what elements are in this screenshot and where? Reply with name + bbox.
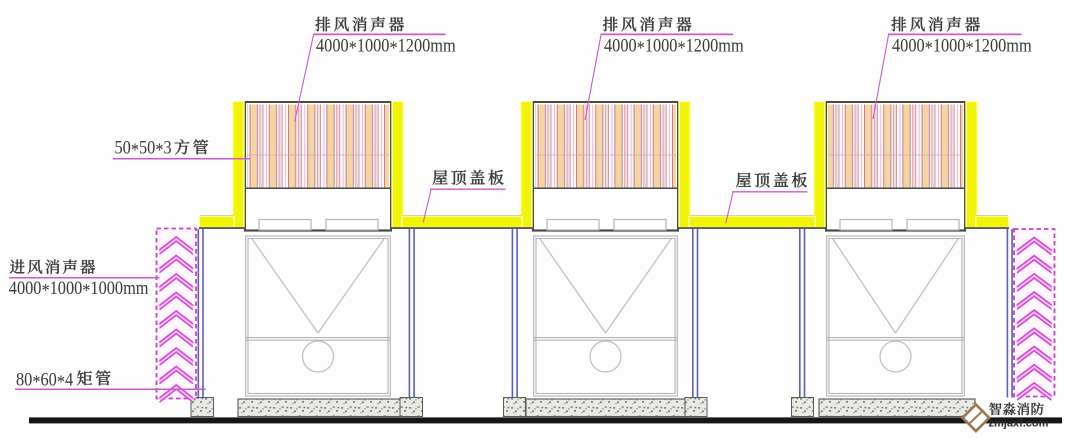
svg-text:zmjaxf.com: zmjaxf.com — [989, 418, 1049, 430]
svg-text:4000*1000*1000mm: 4000*1000*1000mm — [9, 277, 149, 301]
svg-text:4000*1000*1200mm: 4000*1000*1200mm — [892, 34, 1032, 58]
svg-text:4000*1000*1200mm: 4000*1000*1200mm — [604, 34, 744, 58]
svg-text:50*50*3: 50*50*3 — [115, 136, 172, 160]
svg-text:4000*1000*1200mm: 4000*1000*1200mm — [316, 34, 456, 58]
